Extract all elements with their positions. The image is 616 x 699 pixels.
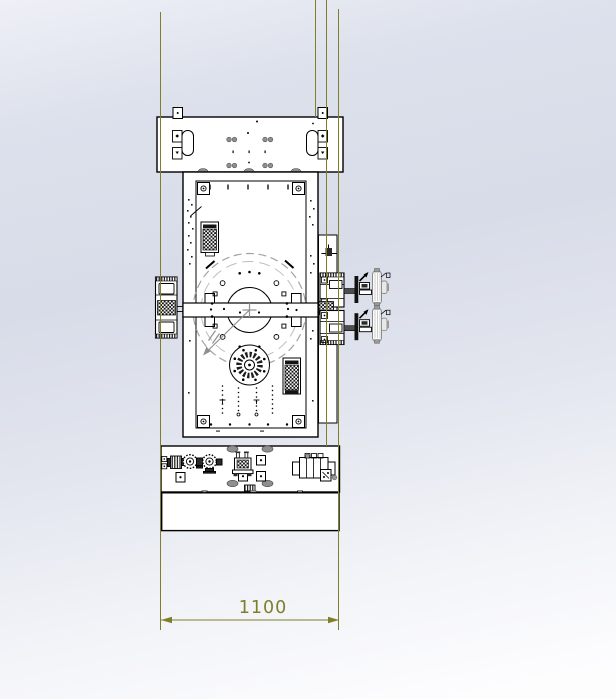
bottom-component-plate (161, 446, 340, 495)
handwheel-assembly-lower (344, 306, 390, 344)
cad-viewport[interactable]: 1100 (0, 0, 616, 699)
handwheel-assembly-upper (344, 269, 390, 307)
gear-hub (230, 345, 270, 385)
sensor-bracket-lower-right (283, 358, 301, 394)
dimension-arrow-right (328, 617, 339, 623)
right-guide-blocks (319, 273, 344, 345)
left-clamp-block (156, 277, 184, 338)
main-body (183, 172, 318, 437)
dimension-1100: 1100 (161, 598, 339, 623)
dimension-value: 1100 (239, 598, 288, 618)
dimension-arrow-left (161, 617, 172, 623)
top-mounting-plate (157, 108, 343, 176)
plate-top-lug-left (173, 108, 183, 119)
drawing-canvas[interactable]: 1100 (0, 0, 616, 699)
sensor-bracket-upper-left (201, 222, 219, 256)
base-block (162, 493, 339, 531)
lower-hatch-part (245, 485, 256, 491)
